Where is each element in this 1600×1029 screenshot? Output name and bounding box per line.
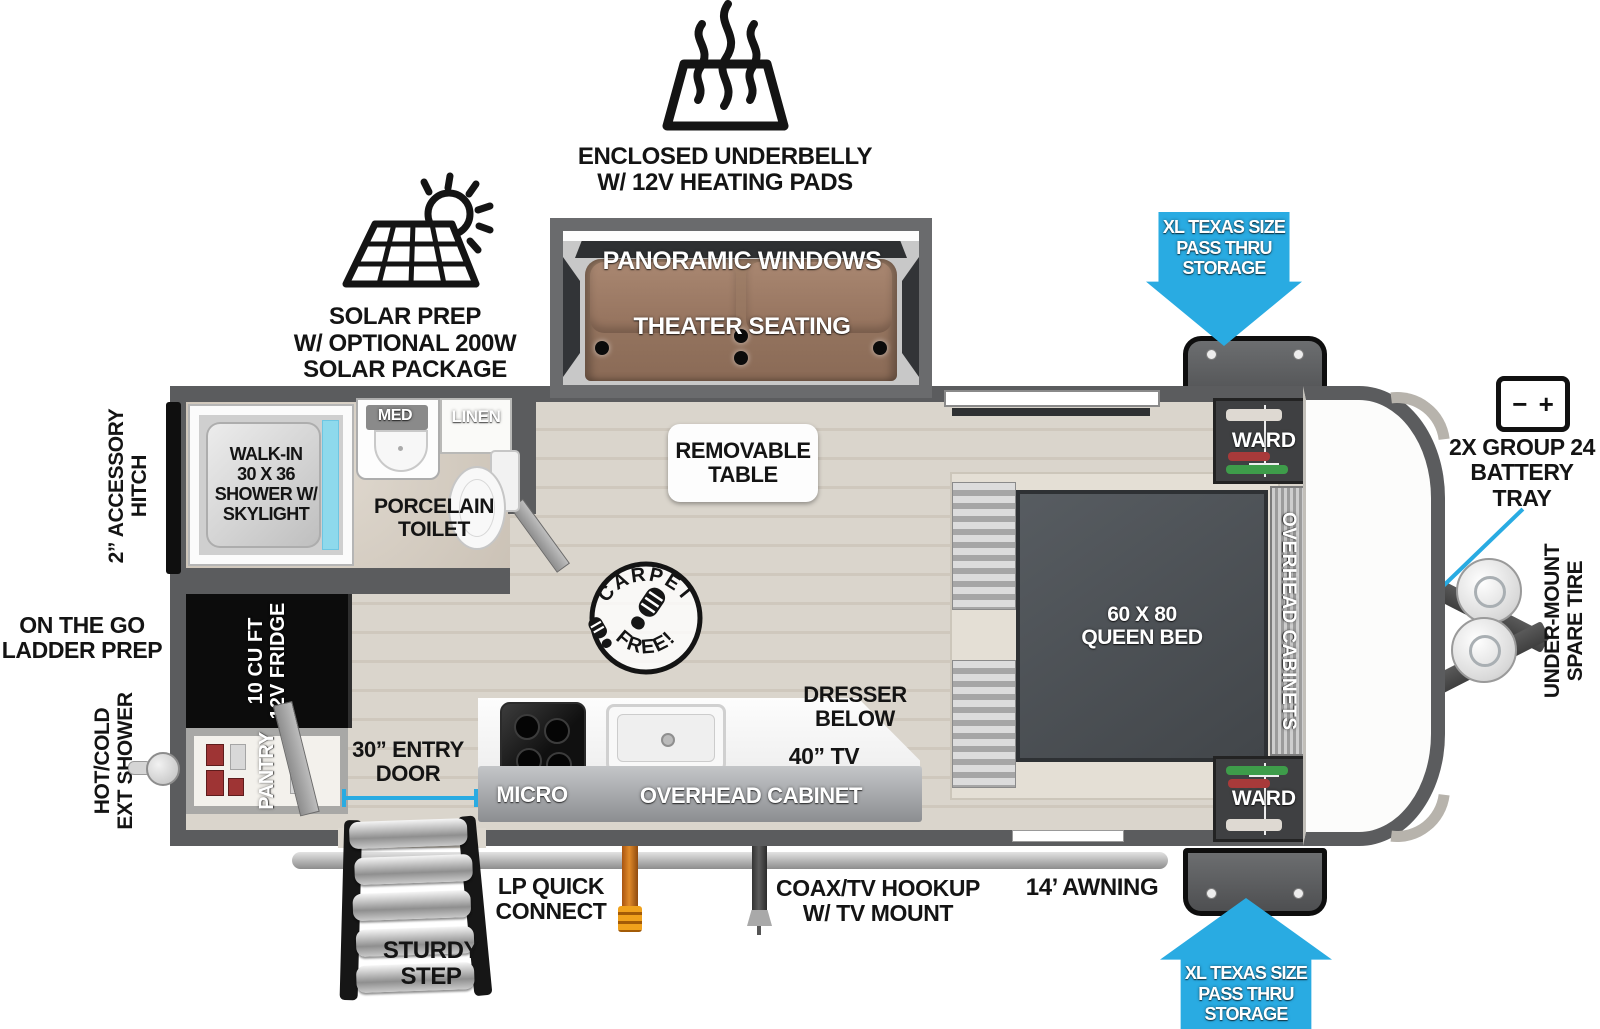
- battery: [1451, 617, 1517, 683]
- window-sill: [952, 408, 1150, 416]
- med-cabinet-label: MED: [364, 404, 426, 428]
- wardrobe-bottom: WARD: [1213, 756, 1315, 842]
- carpet-free-stamp: CARPET FREE!: [586, 558, 706, 678]
- queen-bed-label: 60 X 80 QUEEN BED: [1016, 490, 1268, 762]
- dresser-label: DRESSER BELOW: [794, 680, 916, 734]
- accessory-hitch-bar: [166, 402, 181, 574]
- pass-thru-arrow-up-icon: XL TEXAS SIZE PASS THRU STORAGE: [1160, 898, 1332, 1029]
- pantry-label: PANTRY: [186, 728, 348, 814]
- solar-prep-icon: [332, 172, 497, 300]
- theater-seating-label: THEATER SEATING: [600, 313, 884, 341]
- rv-floorplan-diagram: ENCLOSED UNDERBELLY W/ 12V HEATING PADS …: [0, 0, 1600, 1029]
- overhead-cabinets: OVERHEAD CABINETS: [1270, 486, 1306, 756]
- screw-icon: [1293, 888, 1304, 899]
- enclosed-underbelly-label: ENCLOSED UNDERBELLY W/ 12V HEATING PADS: [545, 141, 905, 199]
- screw-icon: [1293, 349, 1304, 360]
- burner-icon: [514, 714, 540, 740]
- battery-minus: −: [1512, 389, 1527, 420]
- cupholder-icon: [873, 341, 887, 355]
- sturdy-step-label: STURDY STEP: [372, 934, 490, 994]
- cupholder-icon: [734, 351, 748, 365]
- pass-thru-arrow-down-icon: XL TEXAS SIZE PASS THRU STORAGE: [1146, 212, 1302, 346]
- bathroom-wall: [186, 568, 510, 594]
- battery-icon: − +: [1496, 376, 1570, 432]
- shower-label: WALK-IN 30 X 36 SHOWER W/ SKYLIGHT: [196, 424, 336, 546]
- pass-thru-bottom-label: XL TEXAS SIZE PASS THRU STORAGE: [1185, 958, 1307, 1029]
- bed-step: [952, 482, 1016, 610]
- wardrobe-label: WARD: [1216, 401, 1312, 481]
- step-tread: [354, 854, 473, 885]
- battery: [1456, 558, 1522, 624]
- lp-quick-connect-icon: [622, 846, 638, 908]
- solar-prep-label: SOLAR PREP W/ OPTIONAL 200W SOLAR PACKAG…: [268, 297, 542, 391]
- bed-step: [952, 660, 1016, 788]
- ladder-prep-label: ON THE GO LADDER PREP: [0, 610, 164, 666]
- lp-connect-label: LP QUICK CONNECT: [488, 872, 614, 926]
- awning-label: 14’ AWNING: [1008, 872, 1176, 904]
- lp-quick-connect-icon: [618, 906, 642, 932]
- window: [1012, 830, 1124, 842]
- wardrobe-label: WARD: [1216, 759, 1312, 839]
- battery-plus: +: [1539, 389, 1554, 420]
- theater-seating-slideout: [550, 218, 932, 398]
- entry-door-label: 30” ENTRY DOOR: [338, 736, 478, 788]
- kitchen-sink: [606, 704, 726, 772]
- pass-thru-top-label: XL TEXAS SIZE PASS THRU STORAGE: [1163, 212, 1285, 283]
- accessory-hitch-label: 2” ACCESSORY HITCH: [100, 391, 156, 581]
- overhead-cabinets-label: OVERHEAD CABINETS: [1277, 512, 1299, 731]
- door-dimension-line: [342, 796, 478, 800]
- wardrobe-top: WARD: [1213, 398, 1315, 484]
- screw-icon: [1206, 888, 1217, 899]
- battery-tray-label: 2X GROUP 24 BATTERY TRAY: [1444, 431, 1600, 515]
- overhead-cabinet-label: OVERHEAD CABINET: [592, 782, 910, 810]
- step-tread: [349, 818, 468, 849]
- burner-icon: [544, 718, 570, 744]
- cupholder-icon: [595, 341, 609, 355]
- step-tread: [352, 890, 471, 921]
- fridge: 10 CU FT 12V FRIDGE: [186, 594, 352, 728]
- coax-hookup-label: COAX/TV HOOKUP W/ TV MOUNT: [756, 874, 1000, 928]
- sink-basin: [374, 430, 428, 472]
- window: [944, 390, 1160, 407]
- tv-label: 40” TV: [778, 742, 870, 772]
- heating-pads-icon: [648, 0, 803, 138]
- panoramic-windows-label: PANORAMIC WINDOWS: [572, 247, 912, 277]
- toilet-label: PORCELAIN TOILET: [366, 490, 502, 546]
- screw-icon: [1206, 349, 1217, 360]
- microwave-label: MICRO: [486, 780, 578, 810]
- linen-label: LINEN: [440, 406, 512, 428]
- slideout-trim: [563, 231, 919, 241]
- exterior-shower-knob-icon: [146, 752, 180, 786]
- spare-tire-label: UNDER-MOUNT SPARE TIRE: [1535, 526, 1593, 716]
- removable-table-label: REMOVABLE TABLE: [668, 424, 818, 502]
